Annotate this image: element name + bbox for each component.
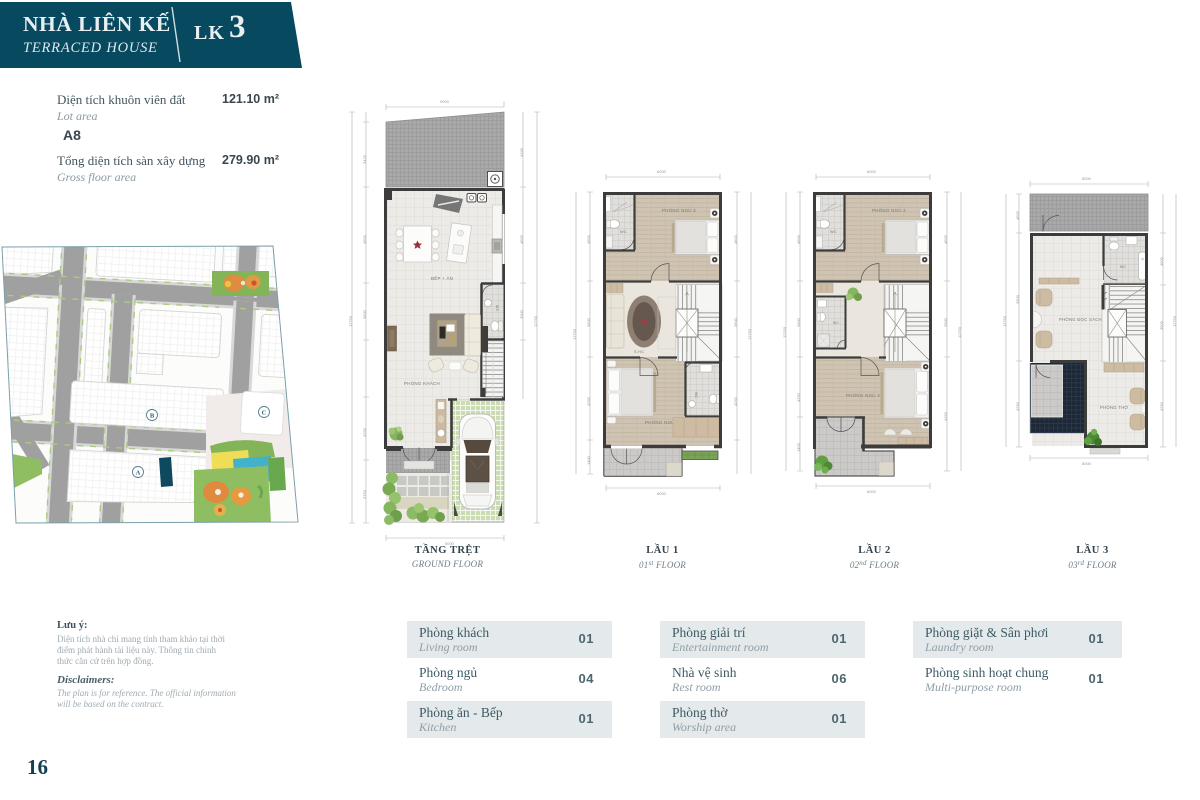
svg-text:1400: 1400 — [586, 455, 591, 465]
svg-text:WC: WC — [620, 230, 627, 234]
svg-text:3900: 3900 — [586, 317, 591, 327]
svg-text:4600: 4600 — [1159, 256, 1164, 266]
svg-text:PHÒNG NGỦ 3: PHÒNG NGỦ 3 — [846, 393, 880, 398]
svg-text:9000: 9000 — [440, 99, 450, 104]
svg-text:12750: 12750 — [348, 315, 353, 327]
svg-text:PHÒNG NGỦ 2: PHÒNG NGỦ 2 — [662, 208, 696, 213]
svg-text:12750: 12750 — [747, 328, 752, 340]
svg-text:WC: WC — [495, 305, 499, 312]
svg-text:4600: 4600 — [733, 234, 738, 244]
svg-text:BẾP + ĂN: BẾP + ĂN — [431, 276, 453, 281]
svg-text:6000: 6000 — [657, 491, 667, 496]
svg-text:PHÒNG THỜ: PHÒNG THỜ — [1100, 405, 1128, 410]
svg-text:A: A — [136, 470, 141, 477]
svg-text:PHÒNG KHÁCH: PHÒNG KHÁCH — [404, 381, 440, 386]
svg-text:4250: 4250 — [943, 411, 948, 421]
svg-text:4250: 4250 — [796, 392, 801, 402]
svg-text:4600: 4600 — [943, 234, 948, 244]
svg-text:12750: 12750 — [533, 315, 538, 327]
svg-text:4250: 4250 — [733, 396, 738, 406]
svg-text:3000: 3000 — [519, 309, 524, 319]
svg-text:4600: 4600 — [1015, 210, 1020, 220]
svg-text:12750: 12750 — [572, 328, 577, 340]
svg-text:3900: 3900 — [362, 309, 367, 319]
svg-text:3900: 3900 — [943, 317, 948, 327]
svg-text:WC: WC — [830, 230, 837, 234]
svg-text:PHÒNG ĐỌC SÁCH: PHÒNG ĐỌC SÁCH — [1059, 317, 1102, 322]
svg-text:6000: 6000 — [867, 489, 877, 494]
svg-text:WC: WC — [694, 392, 698, 399]
svg-text:4250: 4250 — [362, 427, 367, 437]
svg-text:4600: 4600 — [586, 234, 591, 244]
svg-text:12750: 12750 — [957, 326, 962, 338]
svg-text:4600: 4600 — [362, 234, 367, 244]
svg-text:12750: 12750 — [782, 326, 787, 338]
svg-text:4349: 4349 — [519, 147, 524, 157]
svg-text:12750: 12750 — [1172, 315, 1177, 327]
svg-text:1400: 1400 — [796, 442, 801, 452]
svg-text:6000: 6000 — [867, 169, 877, 174]
svg-text:12750: 12750 — [1002, 315, 1007, 327]
svg-text:C: C — [262, 410, 267, 417]
svg-text:8000: 8000 — [1082, 176, 1092, 181]
svg-text:4600: 4600 — [796, 234, 801, 244]
svg-text:3750: 3750 — [362, 489, 367, 499]
svg-text:3425: 3425 — [362, 154, 367, 164]
svg-text:4250: 4250 — [1015, 401, 1020, 411]
svg-text:4250: 4250 — [1159, 401, 1164, 411]
svg-text:6000: 6000 — [1082, 461, 1092, 466]
svg-text:4250: 4250 — [586, 396, 591, 406]
svg-text:S.HC: S.HC — [634, 350, 644, 354]
svg-text:3900: 3900 — [1159, 320, 1164, 330]
svg-text:PHÒNG NGỦ 4: PHÒNG NGỦ 4 — [872, 208, 906, 213]
svg-text:WC: WC — [1120, 265, 1127, 269]
svg-text:6000: 6000 — [657, 169, 667, 174]
svg-text:4600: 4600 — [519, 234, 524, 244]
svg-text:3900: 3900 — [1015, 294, 1020, 304]
svg-text:3900: 3900 — [733, 317, 738, 327]
svg-text:3900: 3900 — [796, 317, 801, 327]
svg-text:B: B — [150, 413, 155, 420]
svg-text:WC: WC — [833, 321, 840, 325]
